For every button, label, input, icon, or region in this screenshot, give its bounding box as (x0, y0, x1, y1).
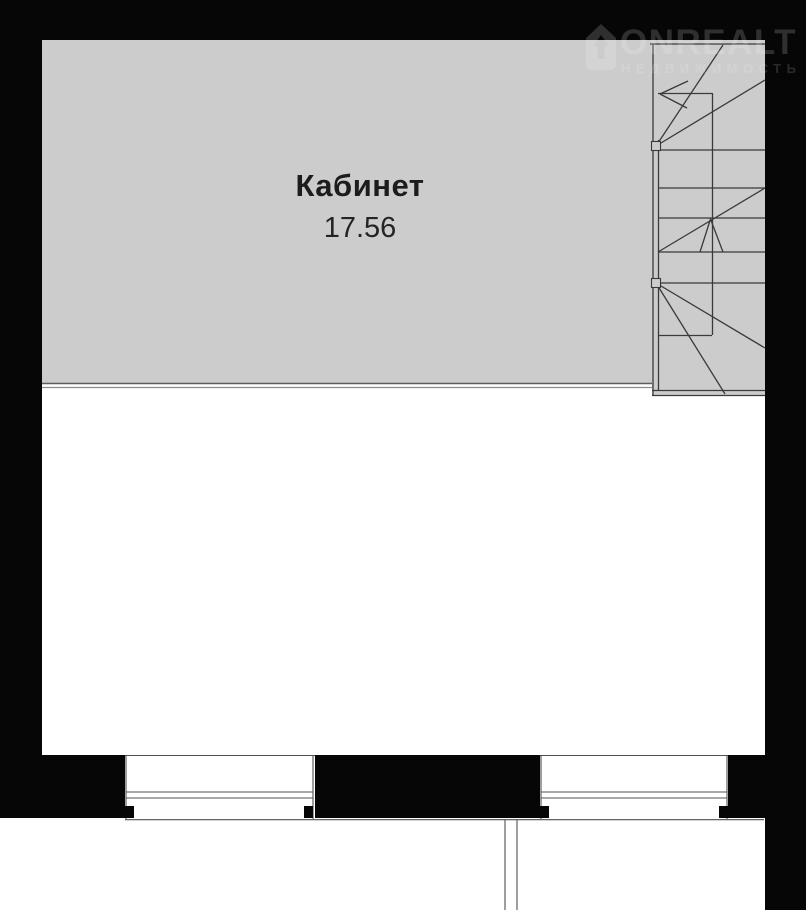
wall-bottom-left-block (0, 755, 125, 818)
watermark-brand-text: ONREALT (620, 25, 797, 60)
stair-node-upper (652, 142, 661, 151)
stair-node-lower (652, 279, 661, 288)
window-2-glass (541, 792, 727, 798)
window-2-sill-notch-left (540, 806, 549, 818)
wall-bottom-right-pier (728, 755, 765, 818)
window-1-sill-notch-right (304, 806, 313, 818)
floor-plan: Кабинет 17.56 ONREALT НЕДВИЖИМОСТЬ (0, 0, 806, 910)
window-1-glass (126, 792, 313, 798)
window-2-sill-notch-right (719, 806, 728, 818)
room-area-value: 17.56 (240, 212, 480, 245)
window-1-jambs (126, 756, 313, 819)
wall-bottom-center-pier (315, 755, 540, 818)
floor-plan-drawing (0, 0, 806, 910)
watermark-logo: ONREALT НЕДВИЖИМОСТЬ (550, 16, 796, 82)
wall-right (765, 0, 806, 910)
window-2 (540, 756, 728, 820)
house-arrow-icon (586, 24, 616, 70)
window-1 (125, 756, 315, 820)
watermark-tagline-text: НЕДВИЖИМОСТЬ (621, 62, 801, 75)
lower-partition-lines (505, 820, 517, 910)
window-1-sill-notch-left (125, 806, 134, 818)
room-name-label: Кабинет (240, 168, 480, 204)
room-bottom-border (42, 384, 652, 388)
window-2-jambs (541, 756, 727, 819)
wall-left (0, 0, 42, 757)
